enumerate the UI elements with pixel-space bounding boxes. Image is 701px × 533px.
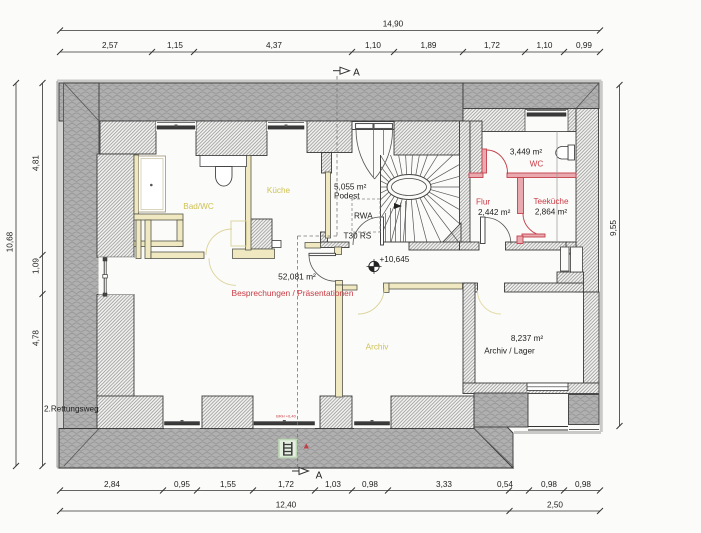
svg-text:12,40: 12,40 — [276, 501, 297, 510]
svg-text:1,72: 1,72 — [278, 480, 294, 489]
svg-text:RWA: RWA — [354, 212, 373, 221]
svg-text:4,78: 4,78 — [32, 330, 41, 346]
svg-text:3,449 m²: 3,449 m² — [510, 148, 543, 157]
svg-text:0,54: 0,54 — [497, 480, 513, 489]
svg-text:4,37: 4,37 — [266, 41, 282, 50]
svg-text:BRH +0,40: BRH +0,40 — [276, 414, 296, 419]
svg-text:2,442 m²: 2,442 m² — [478, 208, 511, 217]
svg-text:Besprechungen / Präsentationen: Besprechungen / Präsentationen — [232, 288, 354, 298]
svg-text:10,68: 10,68 — [6, 231, 15, 252]
svg-text:Teeküche: Teeküche — [533, 197, 568, 206]
svg-text:1,89: 1,89 — [421, 41, 437, 50]
svg-text:0,99: 0,99 — [576, 41, 592, 50]
svg-text:0,95: 0,95 — [174, 480, 190, 489]
svg-text:0,98: 0,98 — [575, 480, 591, 489]
svg-text:0,98: 0,98 — [362, 480, 378, 489]
svg-text:2,50: 2,50 — [547, 501, 563, 510]
svg-text:1,10: 1,10 — [365, 41, 381, 50]
svg-text:2.Rettungsweg: 2.Rettungsweg — [44, 405, 99, 414]
svg-text:Flur: Flur — [476, 198, 490, 207]
svg-text:1,09: 1,09 — [32, 258, 41, 274]
svg-text:5,055 m²: 5,055 m² — [334, 183, 367, 192]
svg-text:3,33: 3,33 — [436, 480, 452, 489]
svg-text:1,10: 1,10 — [537, 41, 553, 50]
svg-text:1,72: 1,72 — [484, 41, 500, 50]
svg-text:A: A — [353, 68, 360, 79]
svg-text:A: A — [316, 471, 323, 482]
svg-text:T30 RS: T30 RS — [344, 232, 372, 241]
svg-text:Küche: Küche — [267, 186, 291, 195]
svg-text:52,081 m²: 52,081 m² — [278, 272, 316, 282]
svg-text:1,55: 1,55 — [220, 480, 236, 489]
svg-text:0,98: 0,98 — [541, 480, 557, 489]
svg-text:14,90: 14,90 — [383, 20, 404, 29]
svg-text:2,864 m²: 2,864 m² — [535, 208, 568, 217]
svg-text:Podest: Podest — [334, 192, 360, 201]
svg-text:Archiv / Lager: Archiv / Lager — [484, 347, 535, 356]
svg-text:Bad/WC: Bad/WC — [183, 202, 214, 211]
svg-text:2,84: 2,84 — [104, 480, 120, 489]
svg-text:+10,645: +10,645 — [380, 255, 410, 264]
svg-text:9,55: 9,55 — [609, 220, 618, 236]
svg-text:1,03: 1,03 — [325, 480, 341, 489]
svg-text:8,237 m²: 8,237 m² — [511, 334, 544, 343]
svg-text:2,57: 2,57 — [102, 41, 118, 50]
svg-text:1,15: 1,15 — [167, 41, 183, 50]
svg-text:WC: WC — [530, 160, 544, 169]
svg-text:Archiv: Archiv — [366, 343, 390, 352]
svg-text:4,81: 4,81 — [32, 155, 41, 171]
